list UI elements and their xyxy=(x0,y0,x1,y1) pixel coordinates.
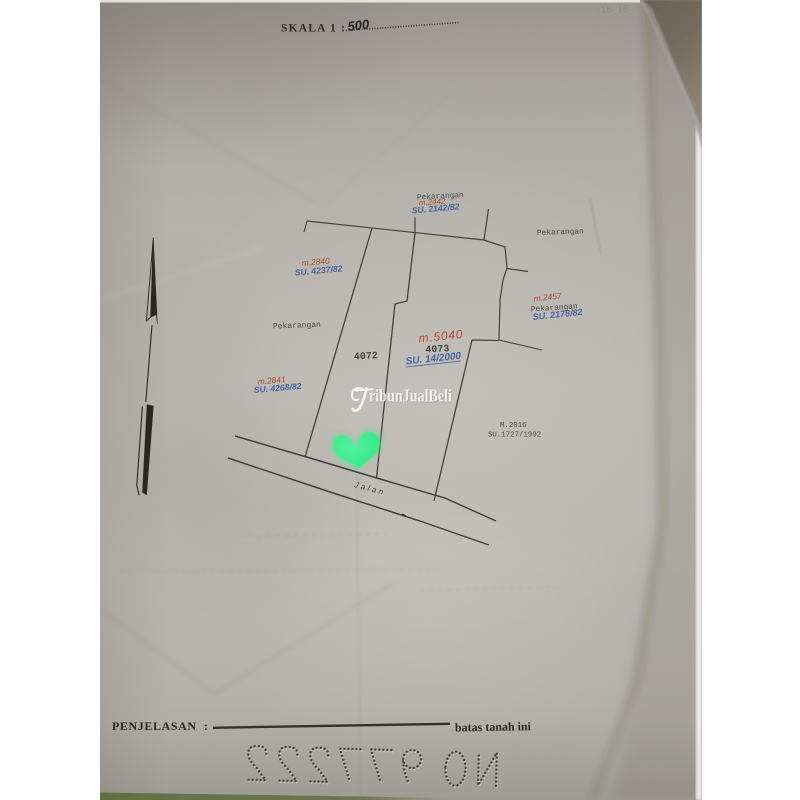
svg-text:4072: 4072 xyxy=(354,351,379,363)
svg-text:batas tanah ini: batas tanah ini xyxy=(455,719,532,734)
svg-text:500: 500 xyxy=(347,16,371,34)
svg-text:.15 18: .15 18 xyxy=(598,4,629,16)
svg-text:ribunJualBeli: ribunJualBeli xyxy=(369,386,452,406)
svg-text:M.2016: M.2016 xyxy=(500,422,527,430)
svg-text:SU.1727/1992: SU.1727/1992 xyxy=(488,432,541,440)
svg-text:Pekarangan: Pekarangan xyxy=(537,228,584,238)
svg-text:PENJELASAN :: PENJELASAN : xyxy=(112,719,208,733)
svg-text:Pekarangan: Pekarangan xyxy=(273,321,321,332)
svg-text:SKALA 1 :: SKALA 1 : xyxy=(281,23,346,35)
